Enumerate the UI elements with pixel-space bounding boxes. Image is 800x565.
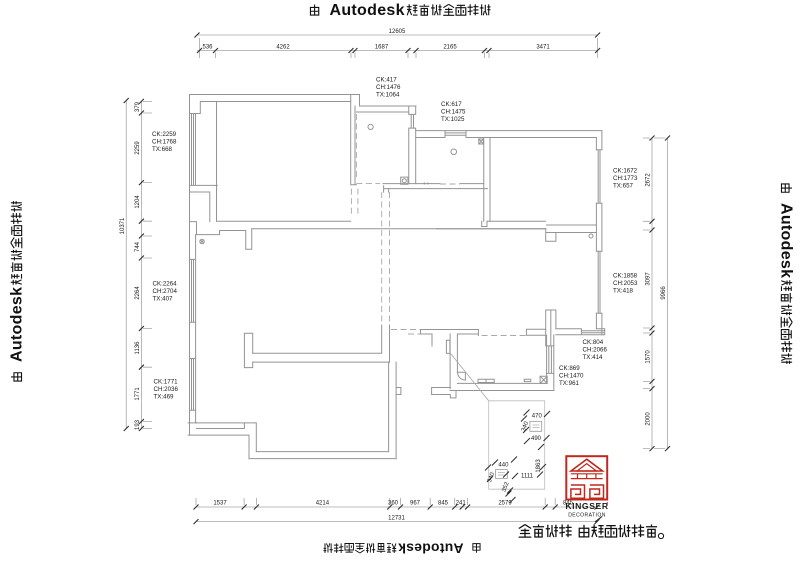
svg-text:440: 440 — [498, 463, 509, 469]
svg-text:536: 536 — [202, 45, 213, 51]
svg-text:744: 744 — [135, 241, 141, 252]
svg-text:TX:469: TX:469 — [154, 394, 175, 401]
svg-text:CH:2053: CH:2053 — [613, 280, 638, 287]
svg-text:3471: 3471 — [536, 45, 550, 51]
svg-text:CH:1475: CH:1475 — [441, 109, 466, 116]
svg-text:CH:2036: CH:2036 — [154, 386, 179, 393]
svg-text:470: 470 — [532, 414, 543, 420]
svg-text:1204: 1204 — [135, 195, 141, 209]
svg-text:Autodesk: Autodesk — [330, 2, 405, 19]
svg-text:4214: 4214 — [316, 501, 330, 507]
svg-text:241: 241 — [456, 501, 467, 507]
svg-text:CK:804: CK:804 — [583, 339, 604, 346]
svg-text:2579: 2579 — [498, 501, 512, 507]
svg-text:2000: 2000 — [646, 412, 652, 426]
svg-text:DECORATION: DECORATION — [568, 513, 606, 519]
svg-text:193: 193 — [135, 419, 141, 430]
svg-text:Autodesk: Autodesk — [9, 287, 26, 362]
svg-text:2259: 2259 — [135, 141, 141, 155]
svg-text:10371: 10371 — [120, 217, 126, 234]
svg-text:967: 967 — [410, 501, 421, 507]
svg-text:CK:2264: CK:2264 — [153, 281, 178, 288]
svg-text:CK:617: CK:617 — [441, 101, 462, 108]
svg-text:3097: 3097 — [646, 272, 652, 286]
svg-text:CH:2066: CH:2066 — [583, 347, 608, 354]
svg-text:CH:1470: CH:1470 — [559, 373, 584, 380]
svg-text:TX:668: TX:668 — [152, 146, 173, 153]
svg-text:1111: 1111 — [521, 473, 534, 479]
svg-text:TX:657: TX:657 — [613, 183, 634, 190]
svg-text:1570: 1570 — [646, 350, 652, 364]
svg-text:1136: 1136 — [135, 341, 141, 355]
svg-text:CK:1771: CK:1771 — [154, 379, 179, 386]
svg-text:9966: 9966 — [661, 286, 667, 300]
svg-text:1537: 1537 — [213, 501, 227, 507]
svg-text:12731: 12731 — [388, 516, 405, 522]
svg-text:CH:1773: CH:1773 — [613, 175, 638, 182]
svg-text:CK:417: CK:417 — [376, 77, 397, 84]
svg-text:TX:414: TX:414 — [583, 354, 604, 361]
svg-text:CK:1672: CK:1672 — [613, 168, 638, 175]
svg-text:Autodesk: Autodesk — [398, 541, 463, 557]
svg-text:TX:961: TX:961 — [559, 380, 580, 387]
svg-text:CH:1768: CH:1768 — [152, 139, 177, 146]
svg-text:12605: 12605 — [389, 29, 406, 35]
svg-text:2165: 2165 — [443, 45, 457, 51]
svg-text:CK:869: CK:869 — [559, 365, 580, 372]
svg-text:490: 490 — [531, 436, 542, 442]
svg-text:KINGSER: KINGSER — [565, 501, 609, 511]
svg-text:845: 845 — [438, 501, 449, 507]
svg-text:CH:2704: CH:2704 — [153, 288, 178, 295]
svg-text:1687: 1687 — [375, 45, 389, 51]
svg-text:1863: 1863 — [536, 459, 542, 473]
svg-text:4262: 4262 — [276, 45, 290, 51]
svg-text:TX:418: TX:418 — [613, 288, 634, 295]
svg-text:CK:1858: CK:1858 — [613, 273, 638, 280]
svg-text:TX:1064: TX:1064 — [376, 92, 400, 99]
svg-text:TX:407: TX:407 — [153, 296, 174, 303]
svg-text:2672: 2672 — [646, 173, 652, 187]
svg-text:Autodesk: Autodesk — [778, 203, 795, 278]
svg-text:CK:2259: CK:2259 — [152, 131, 177, 138]
svg-text:1771: 1771 — [135, 387, 141, 401]
svg-text:360: 360 — [388, 501, 399, 507]
svg-text:TX:1025: TX:1025 — [441, 116, 465, 123]
svg-text:2264: 2264 — [135, 286, 141, 300]
svg-text:379: 379 — [135, 101, 141, 112]
svg-text:CH:1476: CH:1476 — [376, 84, 401, 91]
